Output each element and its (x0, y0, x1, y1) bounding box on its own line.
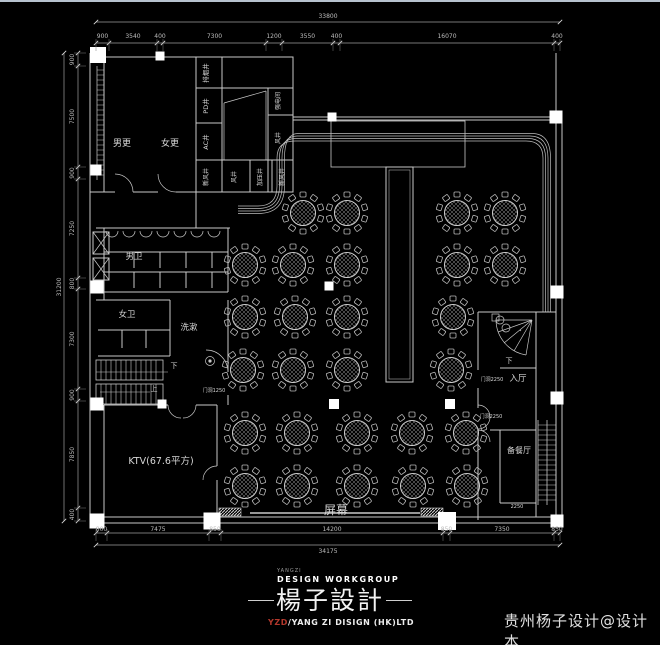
chair (310, 194, 318, 202)
column (156, 52, 165, 61)
chair (364, 444, 372, 452)
chair (361, 267, 368, 274)
chair (336, 424, 343, 431)
chair (519, 256, 526, 263)
chair (361, 204, 368, 211)
column (90, 47, 106, 63)
chair (471, 267, 478, 274)
chair (344, 281, 350, 286)
chair (344, 349, 350, 354)
chair (326, 215, 333, 222)
room-label: 加压井 (256, 168, 264, 186)
chair (344, 333, 350, 338)
room-label: 新风井 (278, 168, 286, 186)
chair (445, 424, 452, 431)
chair (464, 194, 472, 202)
chair (290, 349, 296, 354)
chair (304, 414, 312, 422)
designer-logo: YANGZI DESIGN WORKGROUP 楊子設計 YZD/YANG ZI… (248, 568, 458, 627)
room-label: 风井 (230, 171, 238, 183)
room-label: 男卫 (125, 252, 143, 262)
chair (354, 449, 360, 454)
chair (354, 351, 362, 359)
chair (230, 467, 238, 475)
chair (420, 497, 428, 505)
chair (454, 192, 460, 197)
chair (432, 308, 439, 315)
chair (519, 215, 526, 222)
dimension-label: 3550 (300, 33, 315, 40)
dimension-label: 7850 (69, 447, 76, 462)
chair (354, 194, 362, 202)
chair (242, 412, 248, 417)
chair (490, 276, 498, 284)
chair (252, 276, 260, 284)
watermark-text: 贵州杨子设计@设计本 (504, 610, 660, 645)
room-label: 男更 (113, 138, 131, 149)
column (550, 111, 563, 124)
chair (448, 349, 454, 354)
dimension-label: 7475 (150, 526, 165, 533)
chair (451, 444, 459, 452)
chair (276, 435, 283, 442)
chair (259, 488, 266, 495)
round-table (326, 296, 368, 338)
chair (342, 414, 350, 422)
chair (336, 488, 343, 495)
chair (290, 281, 296, 286)
dimension-label: 400 (154, 33, 166, 40)
chair (426, 435, 433, 442)
chair (302, 298, 310, 306)
chair (354, 224, 362, 232)
chair (371, 477, 378, 484)
chair (242, 449, 248, 454)
chair (230, 328, 238, 336)
chair (224, 488, 231, 495)
chair (490, 246, 498, 254)
room-label: PD井 (201, 98, 210, 114)
chair (446, 488, 453, 495)
chair (364, 467, 372, 475)
chair (490, 224, 498, 232)
chair (438, 328, 446, 336)
chair (242, 281, 248, 286)
room-label: 风井 (274, 132, 282, 144)
chair (252, 298, 260, 306)
chair (278, 246, 286, 254)
chair (332, 194, 340, 202)
chair (259, 308, 266, 315)
chair (272, 267, 279, 274)
chair (464, 465, 470, 470)
chair (473, 444, 481, 452)
chair (272, 361, 279, 368)
room-label: KTV(67.6平方) (128, 455, 193, 467)
chair (259, 424, 266, 431)
chair (309, 308, 316, 315)
chair (361, 372, 368, 379)
chair (458, 351, 466, 359)
chair (361, 215, 368, 222)
chair (332, 224, 340, 232)
chair (292, 333, 298, 338)
chair (276, 477, 283, 484)
logo-workgroup-text: DESIGN WORKGROUP (277, 575, 458, 584)
chair (332, 381, 340, 389)
chair (419, 414, 427, 422)
chair (354, 276, 362, 284)
round-table (326, 349, 368, 391)
dimension-label: 900 (69, 167, 76, 179)
chair (311, 424, 318, 431)
chair (326, 361, 333, 368)
chair (397, 414, 405, 422)
chair (436, 204, 443, 211)
chair (282, 215, 289, 222)
room-label: 女更 (161, 137, 179, 149)
chair (310, 224, 318, 232)
chair (512, 276, 520, 284)
chair (311, 488, 318, 495)
chair (454, 229, 460, 234)
chair (250, 381, 258, 389)
chair (436, 267, 443, 274)
chair (272, 372, 279, 379)
chair (288, 194, 296, 202)
round-table (432, 296, 474, 338)
chair (300, 192, 306, 197)
chair (451, 414, 459, 422)
chair (278, 276, 286, 284)
chair (230, 414, 238, 422)
chair (332, 328, 340, 336)
chair (332, 246, 340, 254)
chair (448, 386, 454, 391)
round-table (272, 244, 314, 286)
chair (484, 256, 491, 263)
chair (392, 477, 399, 484)
chair (326, 372, 333, 379)
round-table (224, 412, 266, 454)
chair (230, 276, 238, 284)
chair (361, 361, 368, 368)
chair (398, 467, 406, 475)
room-label: 排烟井 (201, 63, 210, 83)
chair (304, 444, 312, 452)
chair (436, 381, 444, 389)
round-table (326, 244, 368, 286)
chair (224, 319, 231, 326)
dimension-chain: 800747585014200850735085034175 (94, 526, 563, 555)
chair (445, 435, 452, 442)
room-label: 入厅 (509, 374, 527, 384)
floorplan-canvas: 9003540400730012003550400160704003380080… (0, 0, 660, 645)
chair (409, 449, 415, 454)
logo-rule-left (248, 600, 274, 601)
logo-yzd: YZD (268, 618, 288, 627)
room-label: 门洞1250 (203, 387, 226, 394)
chair (317, 204, 324, 211)
chair (344, 192, 350, 197)
chair (471, 204, 478, 211)
logo-company-rest: /YANG ZI DISIGN (HK)LTD (288, 618, 414, 627)
chair (465, 372, 472, 379)
column (329, 399, 339, 409)
chair (257, 372, 264, 379)
chair (257, 361, 264, 368)
chair (307, 372, 314, 379)
chair (442, 246, 450, 254)
chair (458, 381, 466, 389)
chair (391, 435, 398, 442)
chair (397, 444, 405, 452)
chair (502, 244, 508, 249)
chair (252, 328, 260, 336)
chair (307, 256, 314, 263)
logo-chinese-name: 楊子設計 (274, 588, 386, 613)
chair (326, 319, 333, 326)
chair (280, 328, 288, 336)
chair (228, 351, 236, 359)
chair (317, 215, 324, 222)
chair (484, 267, 491, 274)
chair (230, 246, 238, 254)
chair (252, 246, 260, 254)
chair (252, 497, 260, 505)
chair (502, 229, 508, 234)
chair (304, 467, 312, 475)
chair (344, 229, 350, 234)
chair (450, 333, 456, 338)
round-table (336, 465, 378, 507)
column (551, 392, 564, 405)
dimension-label: 7350 (494, 526, 509, 533)
chair (502, 192, 508, 197)
chair (354, 502, 360, 507)
chair (484, 215, 491, 222)
chair (240, 386, 246, 391)
chair (460, 328, 468, 336)
dimension-label: 900 (69, 389, 76, 401)
chair (436, 215, 443, 222)
chair (463, 449, 469, 454)
chair (481, 477, 488, 484)
chair (344, 244, 350, 249)
dimension-chain: 900750090072508007300900785040031200 (56, 51, 86, 523)
round-table (484, 244, 526, 286)
chair (282, 444, 290, 452)
room-label: 洗漱 (180, 322, 198, 333)
chair (426, 424, 433, 431)
dimension-label: 31200 (56, 277, 63, 296)
chair (490, 194, 498, 202)
room-label: 门洞2250 (480, 413, 503, 420)
chair (242, 465, 248, 470)
chair (224, 308, 231, 315)
chair (326, 204, 333, 211)
chair (371, 488, 378, 495)
chair (452, 467, 460, 475)
chair (282, 497, 290, 505)
chair (442, 276, 450, 284)
chair (252, 414, 260, 422)
chair (332, 298, 340, 306)
chair (294, 412, 300, 417)
chair (438, 298, 446, 306)
column (445, 399, 455, 409)
chair (224, 256, 231, 263)
column (551, 286, 564, 299)
screenshot-root: 9003540400730012003550400160704003380080… (0, 0, 660, 645)
chair (300, 246, 308, 254)
chair (326, 308, 333, 315)
chair (371, 424, 378, 431)
chair (282, 204, 289, 211)
chair (342, 467, 350, 475)
chair (276, 424, 283, 431)
chair (519, 267, 526, 274)
chair (326, 267, 333, 274)
chair (342, 444, 350, 452)
dimension-chain: 90035404007300120035504001607040033800 (94, 13, 563, 51)
room-label: 新风井 (202, 168, 210, 186)
chair (290, 386, 296, 391)
room-label: 女卫 (118, 309, 136, 320)
chair (354, 465, 360, 470)
chair (354, 412, 360, 417)
chair (230, 497, 238, 505)
chair (276, 488, 283, 495)
dimension-label: 400 (331, 33, 343, 40)
chair (259, 477, 266, 484)
chair (240, 349, 246, 354)
column (328, 113, 337, 122)
dimension-label: 7300 (69, 331, 76, 346)
chair (442, 224, 450, 232)
chair (311, 435, 318, 442)
chair (354, 381, 362, 389)
chair (420, 467, 428, 475)
chair (294, 449, 300, 454)
chair (344, 296, 350, 301)
chair (512, 194, 520, 202)
chair (242, 502, 248, 507)
chair (230, 298, 238, 306)
column (325, 282, 334, 291)
chair (250, 351, 258, 359)
chair (464, 246, 472, 254)
room-label: 强电间 (274, 92, 282, 110)
room-label: 下 (171, 362, 178, 370)
chair (259, 319, 266, 326)
chair (432, 319, 439, 326)
chair (502, 281, 508, 286)
chair (364, 497, 372, 505)
round-table (282, 192, 324, 234)
chair (288, 224, 296, 232)
chair (361, 319, 368, 326)
chair (278, 351, 286, 359)
round-table (436, 244, 478, 286)
chair (361, 256, 368, 263)
chair (371, 435, 378, 442)
dimension-label: 7250 (69, 221, 76, 236)
chair (512, 224, 520, 232)
chair (467, 319, 474, 326)
chair (361, 308, 368, 315)
chair (460, 298, 468, 306)
chair (354, 298, 362, 306)
chair (354, 328, 362, 336)
dimension-label: 1200 (266, 33, 281, 40)
chair (272, 256, 279, 263)
chair (484, 204, 491, 211)
chair (224, 435, 231, 442)
chair (464, 276, 472, 284)
chair (224, 424, 231, 431)
round-table (276, 412, 318, 454)
chair (304, 497, 312, 505)
room-label: 备餐厅 (507, 445, 531, 455)
chair (364, 414, 372, 422)
chair (427, 488, 434, 495)
dimension-label: 34175 (318, 548, 337, 555)
chair (290, 244, 296, 249)
chair (326, 256, 333, 263)
chair (430, 361, 437, 368)
chair (307, 267, 314, 274)
chair (471, 215, 478, 222)
dimension-label: 800 (96, 526, 108, 533)
chair (480, 435, 487, 442)
dimension-label: 900 (97, 33, 109, 40)
chair (471, 256, 478, 263)
chair (278, 381, 286, 389)
round-table (436, 192, 478, 234)
dimension-label: 850 (551, 526, 563, 533)
chair (259, 256, 266, 263)
chair (300, 229, 306, 234)
chair (481, 488, 488, 495)
chair (467, 308, 474, 315)
chair (300, 351, 308, 359)
chair (336, 477, 343, 484)
chair (454, 281, 460, 286)
chair (392, 488, 399, 495)
chair (282, 467, 290, 475)
chair (398, 497, 406, 505)
chair (336, 435, 343, 442)
dimension-label: 900 (69, 54, 76, 66)
round-table (391, 412, 433, 454)
chair (311, 477, 318, 484)
column (91, 281, 104, 294)
room-label: 上 (151, 384, 158, 393)
chair (274, 319, 281, 326)
chair (252, 444, 260, 452)
column (91, 165, 102, 176)
chair (391, 424, 398, 431)
chair (259, 435, 266, 442)
chair (442, 194, 450, 202)
logo-company-line: YZD/YANG ZI DISIGN (HK)LTD (268, 618, 458, 627)
chair (242, 244, 248, 249)
banquet-tables (222, 192, 526, 507)
chair (436, 256, 443, 263)
round-table (446, 465, 488, 507)
chair (450, 296, 456, 301)
